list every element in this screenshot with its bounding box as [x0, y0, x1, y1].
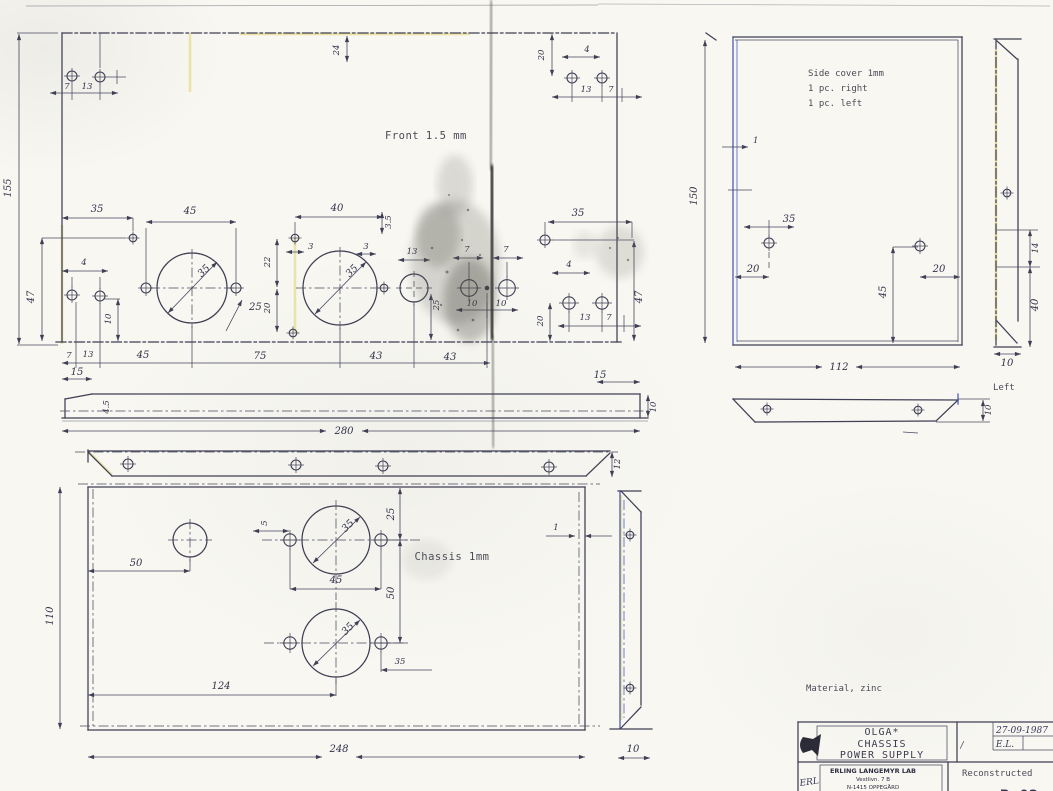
title-company-addr1: Vestlivn. 7 B — [856, 777, 890, 783]
dim-front-b-7: 7 — [66, 351, 72, 361]
dim-front-35-right: 35 — [572, 208, 585, 219]
chassis-view: 110 50 35 5 25 45 50 35 35 1 Chassis 1mm… — [45, 484, 612, 757]
dim-front-3-5: 3.5 — [384, 215, 394, 229]
note-side-cover-3: 1 pc. left — [808, 99, 862, 109]
dim-front-20-col: 20 — [263, 302, 273, 314]
dim-front-tr-13: 13 — [581, 85, 592, 95]
dim-front-24: 24 — [332, 45, 342, 57]
dim-strip-4-5: 4.5 — [102, 400, 112, 415]
dim-sc-20-l: 20 — [746, 264, 760, 275]
dim-front-47-right: 47 — [634, 290, 645, 304]
dim-front-tr-7: 7 — [608, 85, 614, 95]
dim-front-45: 45 — [183, 206, 197, 217]
dim-front-b-43a: 43 — [369, 351, 383, 362]
title-company-name: ERLING LANGEMYR LAB — [830, 767, 916, 775]
dim-sc-45: 45 — [878, 286, 889, 300]
dim-strip-15-r: 15 — [594, 370, 607, 381]
dim-front-13-right: 13 — [580, 313, 591, 323]
dim-front-20-right: 20 — [536, 315, 546, 327]
dim-front-4-right: 4 — [565, 260, 571, 270]
dim-sc-150: 150 — [689, 186, 700, 206]
dim-front-7-right: 7 — [606, 313, 612, 323]
dim-sv-40: 40 — [1030, 298, 1041, 312]
dim-ch-45: 45 — [329, 575, 343, 586]
chassis-side-strip: 10 — [610, 491, 652, 758]
note-material: Material, zinc — [806, 684, 882, 694]
dim-sc-20-r: 20 — [932, 264, 946, 275]
dim-sc-35: 35 — [783, 214, 796, 225]
dim-ch-50-left: 50 — [130, 558, 143, 569]
note-side-cover-2: 1 pc. right — [808, 84, 868, 94]
dim-front-tl-13: 13 — [82, 82, 93, 92]
dim-front-40: 40 — [330, 203, 344, 214]
title-initials: E.L. — [995, 740, 1014, 750]
dim-front-b-43b: 43 — [443, 352, 457, 363]
dim-ch-circle1-dia: 35 — [340, 518, 357, 535]
dim-front-4-left: 4 — [80, 258, 86, 268]
company-logo-mark — [800, 734, 821, 756]
drawing-sheet: 155 7 13 24 20 4 13 7 Front 1.5 mm 47 35… — [0, 0, 1053, 791]
note-front: Front 1.5 mm — [385, 130, 467, 142]
note-side-cover-1: Side cover 1mm — [808, 69, 884, 79]
dim-front-47-left: 47 — [26, 290, 37, 304]
dim-sc-112: 112 — [829, 362, 848, 373]
title-check-mark: / — [959, 741, 964, 751]
dim-front-tl-7: 7 — [64, 82, 70, 92]
dim-ch-124: 124 — [211, 681, 230, 692]
title-drawing-number: B-02 — [1000, 786, 1039, 791]
dim-front-35-left: 35 — [91, 204, 104, 215]
dim-strip-10: 10 — [649, 401, 659, 412]
dim-front-tr-20: 20 — [537, 49, 547, 61]
blueprint-svg: 155 7 13 24 20 4 13 7 Front 1.5 mm 47 35… — [0, 0, 1053, 791]
dim-ch-strip-10: 10 — [627, 744, 640, 755]
dim-front-b-13: 13 — [83, 350, 94, 360]
dim-front-7-m2: 7 — [503, 245, 509, 255]
dim-flange-12: 12 — [613, 459, 623, 470]
dim-front-circle2-dia: 35 — [344, 263, 361, 280]
title-product-3: POWER SUPPLY — [840, 750, 924, 761]
dim-front-circle1-dia: 35 — [196, 263, 213, 280]
sheet-edge — [26, 4, 1050, 6]
side-cover-side-view: 14 40 10 Left — [993, 39, 1041, 393]
dim-front-b-45: 45 — [136, 350, 150, 361]
dim-front-22: 22 — [263, 257, 273, 269]
front-panel-view: 155 7 13 24 20 4 13 7 Front 1.5 mm 47 35… — [3, 33, 645, 368]
dim-front-3-col: 3 — [308, 242, 313, 252]
dim-front-25: 25 — [248, 302, 262, 313]
dim-ch-1: 1 — [553, 523, 558, 533]
dim-st-10: 10 — [984, 404, 994, 415]
dim-front-10-left: 10 — [104, 313, 114, 324]
side-cover-view: 150 1 Side cover 1mm 1 pc. right 1 pc. l… — [689, 33, 962, 373]
dim-ch-248: 248 — [328, 744, 348, 755]
dim-sv-10: 10 — [1001, 358, 1014, 369]
dim-ch-35-br: 35 — [395, 657, 406, 667]
title-block: OLGA* CHASSIS POWER SUPPLY 27-09-1987 E.… — [798, 722, 1053, 791]
title-company-addr2: N-1415 OPPEGÅRD — [847, 784, 899, 791]
front-top-view-strip: 15 15 4.5 10 280 — [60, 367, 659, 437]
side-cover-top-strip: 10 — [733, 394, 994, 433]
dim-ch-25: 25 — [386, 508, 397, 522]
title-product-1: OLGA* — [864, 727, 899, 738]
dim-sv-14: 14 — [1031, 243, 1041, 254]
note-left-view: Left — [993, 383, 1015, 393]
dim-front-3-side: 3 — [363, 242, 368, 252]
dim-strip-280: 280 — [333, 426, 354, 437]
dim-front-height: 155 — [3, 178, 14, 197]
chassis-flange-strip: 12 — [75, 450, 623, 477]
title-status: Reconstructed — [962, 769, 1032, 779]
dim-front-tr-4: 4 — [583, 45, 589, 55]
dim-strip-15-l: 15 — [71, 367, 84, 378]
title-date: 27-09-1987 — [995, 726, 1048, 736]
dim-ch-110: 110 — [45, 606, 56, 626]
dim-ch-5: 5 — [260, 520, 270, 525]
dim-ch-50: 50 — [386, 586, 397, 599]
dim-sc-1: 1 — [753, 136, 758, 146]
title-product-2: CHASSIS — [857, 739, 906, 750]
title-signature: ERL — [798, 776, 820, 789]
dim-front-b-75: 75 — [254, 351, 267, 362]
dim-ch-circle2-dia: 35 — [340, 621, 357, 638]
dim-front-10-m2: 10 — [496, 299, 507, 309]
